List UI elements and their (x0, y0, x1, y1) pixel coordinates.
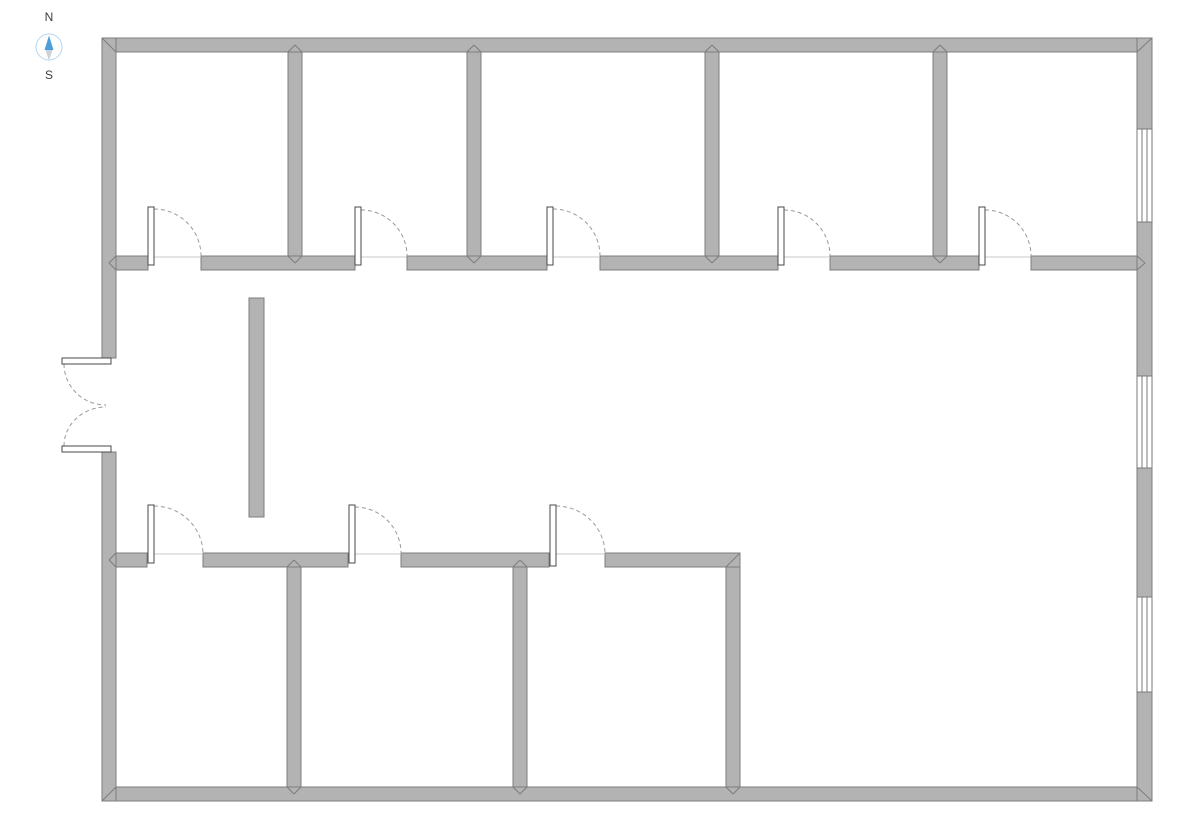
wall-south-partition-1 (287, 567, 301, 787)
wall-south-wing-seg-2 (401, 553, 549, 567)
door-leaf-north-room-5-door (979, 207, 985, 265)
wall-corridor-seg-3 (600, 256, 778, 270)
door-leaf-entrance-door-north-leaf (62, 358, 111, 364)
door-leaf-south-room-3-door (550, 505, 556, 566)
door-swing-arc-north-room-5-door (985, 210, 1031, 256)
wall-corridor-seg-1 (201, 256, 355, 270)
wall-corridor-seg-2 (407, 256, 547, 270)
compass-south-label: S (45, 68, 53, 82)
door-leaf-north-room-2-door (355, 207, 361, 265)
wall-north-partition-1 (288, 52, 302, 256)
door-swing-arc-north-room-2-door (361, 210, 407, 256)
door-leaf-south-room-1-door (148, 505, 154, 563)
door-swing-arc-north-room-3-door (553, 209, 600, 256)
east-window-1 (1137, 129, 1152, 222)
door-leaf-north-room-1-door (148, 207, 154, 265)
door-swing-arc-south-room-2-door (355, 507, 401, 553)
door-swing-arc-south-room-3-door (556, 506, 605, 554)
wall-north-partition-4 (933, 52, 947, 256)
floorplan-svg: NS (0, 0, 1191, 831)
wall-corridor-seg-4 (830, 256, 979, 270)
wall-north-partition-2 (467, 52, 481, 256)
wall-south-wing-seg-1 (203, 553, 348, 567)
door-swing-arc-north-room-4-door (784, 210, 830, 256)
wall-north-partition-3 (705, 52, 719, 256)
door-leaf-entrance-door-south-leaf (62, 446, 111, 452)
wall-south-wing-left-stub (116, 553, 147, 567)
wall-corridor-left-stub (116, 256, 148, 270)
door-leaf-north-room-3-door (547, 207, 553, 265)
east-window-3 (1137, 597, 1152, 692)
compass-north-label: N (45, 10, 54, 24)
floorplan-canvas: NS (0, 0, 1191, 831)
door-swing-arc-entrance-door-north-leaf (64, 364, 106, 405)
door-swing-arc-south-room-1-door (154, 506, 203, 554)
wall-free-standing-wall (249, 298, 264, 517)
wall-exterior-left-upper (102, 38, 116, 358)
door-leaf-north-room-4-door (778, 207, 784, 265)
door-leaf-south-room-2-door (349, 505, 355, 563)
wall-south-wing-right (726, 567, 740, 787)
wall-exterior-top (102, 38, 1152, 52)
door-swing-arc-north-room-1-door (154, 209, 201, 256)
door-swing-arc-entrance-door-south-leaf (64, 407, 106, 446)
wall-exterior-bottom (102, 787, 1152, 801)
wall-corridor-seg-5 (1031, 256, 1137, 270)
wall-exterior-left-lower (102, 452, 116, 801)
east-window-2 (1137, 376, 1152, 468)
wall-south-partition-2 (513, 567, 527, 787)
wall-south-wing-seg-3 (605, 553, 740, 567)
